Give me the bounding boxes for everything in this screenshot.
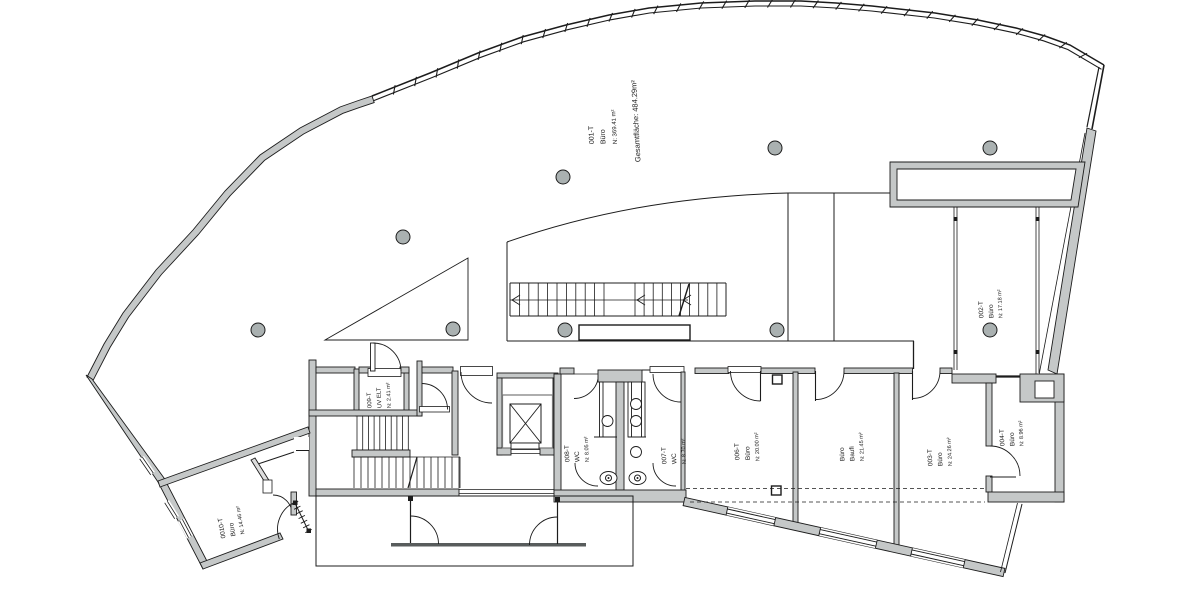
svg-text:003-T: 003-T	[927, 449, 935, 466]
svg-text:UV ELT: UV ELT	[376, 387, 383, 408]
svg-text:Büro: Büro	[1009, 432, 1017, 446]
svg-text:WC: WC	[671, 453, 679, 464]
svg-text:001-T: 001-T	[588, 125, 596, 144]
svg-text:WC: WC	[574, 451, 582, 462]
svg-text:Büro: Büro	[988, 304, 996, 318]
svg-text:002-T: 002-T	[978, 301, 986, 318]
svg-text:Büro: Büro	[744, 446, 752, 460]
svg-text:009-T: 009-T	[367, 392, 374, 408]
svg-text:008-T: 008-T	[564, 445, 572, 462]
svg-text:Büro: Büro	[600, 129, 608, 144]
svg-text:Baufi: Baufi	[849, 446, 857, 461]
svg-text:007-T: 007-T	[661, 447, 669, 464]
svg-text:004-T: 004-T	[999, 429, 1007, 446]
svg-text:Büro: Büro	[839, 447, 847, 461]
svg-text:006-T: 006-T	[734, 443, 742, 460]
svg-text:Büro: Büro	[937, 452, 945, 466]
